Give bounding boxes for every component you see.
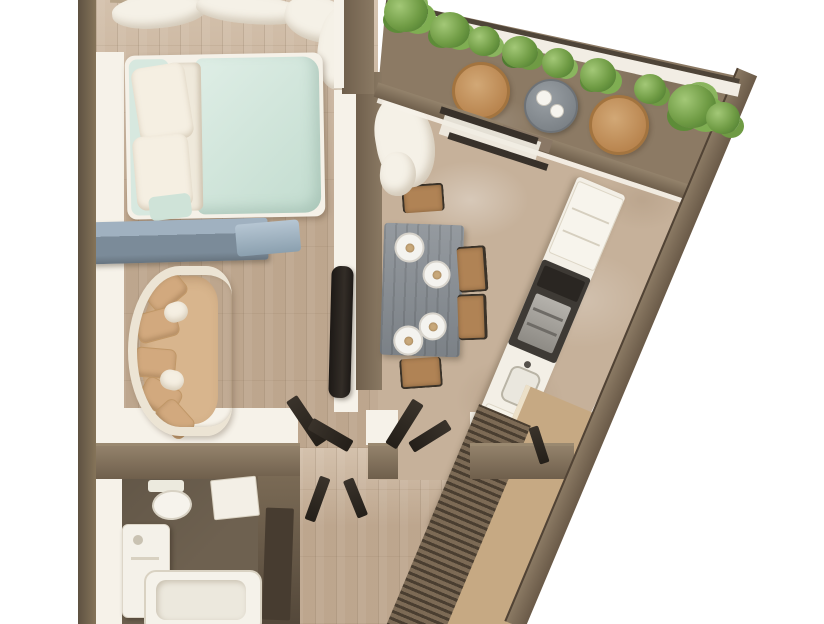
plant xyxy=(542,48,574,78)
left-outer-wall xyxy=(78,0,96,624)
plate xyxy=(394,232,425,263)
floorplan-canvas xyxy=(0,0,824,624)
dining-chair xyxy=(456,245,488,293)
boiler-slot xyxy=(131,557,159,560)
cabinet-line xyxy=(562,229,600,246)
bench-throw xyxy=(235,219,302,256)
bedroom-balcony-wall-face xyxy=(334,0,344,88)
bathroom-door-shadow xyxy=(262,508,294,621)
plate-food xyxy=(428,322,437,331)
cabinet-line xyxy=(572,207,610,224)
oven-line xyxy=(526,322,557,337)
tv xyxy=(328,266,353,399)
cup xyxy=(550,104,564,118)
plate xyxy=(422,260,451,289)
plant xyxy=(634,74,666,104)
bathroom-door-leaf xyxy=(210,476,260,521)
boiler-dial xyxy=(133,535,143,545)
dining-chair xyxy=(457,294,488,341)
plant xyxy=(468,26,500,56)
plate-food xyxy=(404,336,413,345)
curved-sofa xyxy=(128,266,232,436)
dining-chair xyxy=(399,357,443,390)
hall-wall-segment xyxy=(470,443,574,479)
plant xyxy=(706,102,740,134)
bathtub-basin xyxy=(156,580,246,620)
balcony-chair xyxy=(589,95,649,155)
bathtub xyxy=(144,570,262,624)
plate-food xyxy=(405,243,414,252)
bed-mint-pillow xyxy=(148,192,193,221)
hall-wall-segment xyxy=(88,443,300,479)
sofa-frame xyxy=(128,266,232,436)
dining-table xyxy=(380,223,465,358)
plant xyxy=(430,12,470,48)
bathroom-wall-face xyxy=(96,478,122,624)
oven xyxy=(517,293,571,354)
bed xyxy=(125,52,326,219)
plant xyxy=(502,36,538,68)
plate-food xyxy=(432,270,441,279)
plate xyxy=(393,325,424,356)
cup xyxy=(536,90,552,106)
bed-duvet xyxy=(195,56,322,214)
oven-line xyxy=(533,307,564,322)
bed-pillow xyxy=(130,61,195,145)
bedroom-balcony-wall xyxy=(342,0,374,94)
plant xyxy=(580,58,616,92)
